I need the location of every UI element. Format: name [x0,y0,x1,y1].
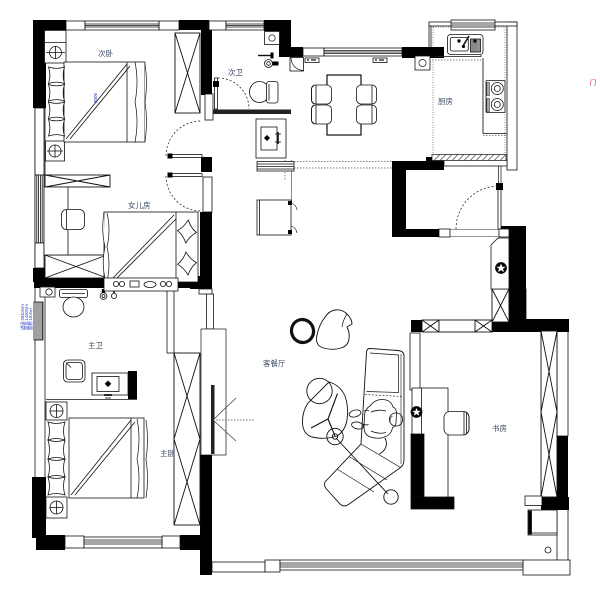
svg-text:3000: 3000 [93,92,98,103]
svg-text:客餐厅: 客餐厅 [263,358,286,368]
svg-text:厨房: 厨房 [438,96,453,106]
svg-text:主卫: 主卫 [88,340,103,350]
svg-text:门: 门 [590,79,596,87]
svg-text:次卫: 次卫 [228,67,243,77]
svg-text:书房: 书房 [492,423,507,433]
svg-text:面积:19.8㎡: 面积:19.8㎡ [27,307,34,330]
svg-text:主卧: 主卧 [160,448,175,458]
svg-text:次卧: 次卧 [98,48,113,58]
svg-text:女儿房: 女儿房 [128,200,151,210]
